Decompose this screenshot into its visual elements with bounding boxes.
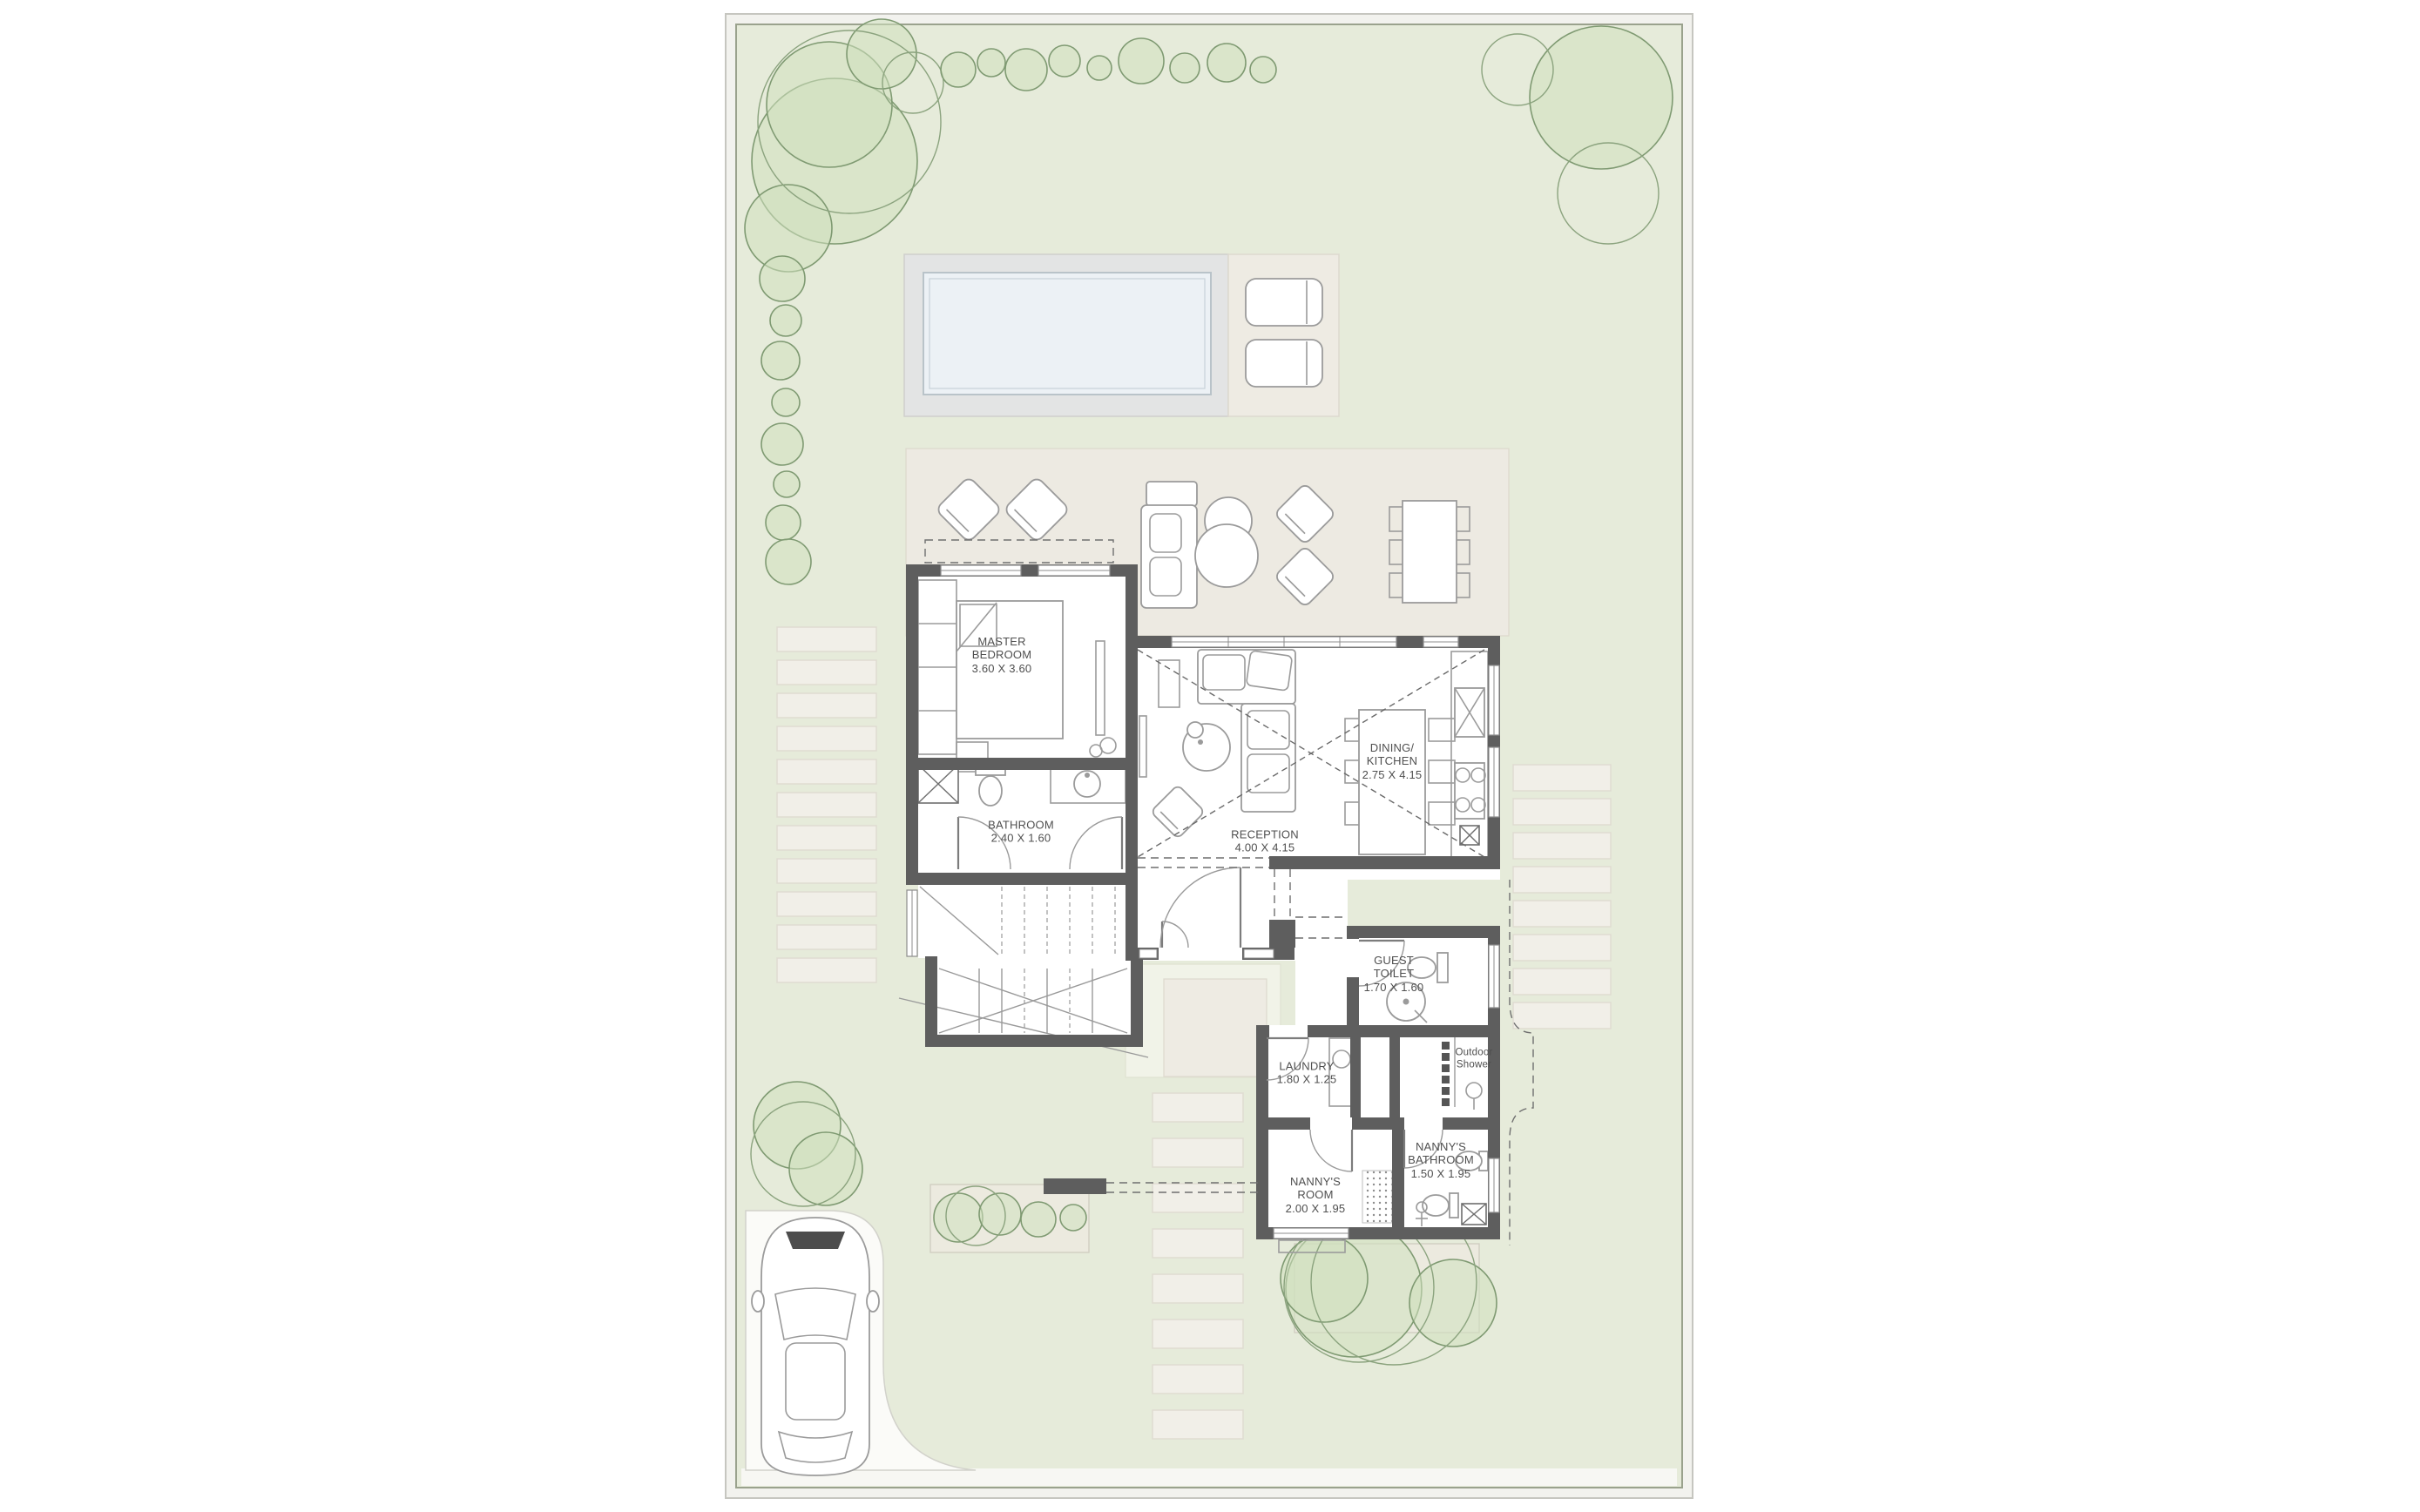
room-label-master-bedroom: MASTER BEDROOM 3.60 X 3.60 [962, 635, 1042, 675]
room-label-laundry: LAUNDRY 1.80 X 1.25 [1254, 1060, 1359, 1087]
room-label-reception: RECEPTION 4.00 X 4.15 [1200, 828, 1330, 855]
room-label-dining-kitchen: DINING/ KITCHEN 2.75 X 4.15 [1352, 741, 1432, 781]
window-icon [1423, 637, 1458, 647]
rug-icon [1362, 1171, 1392, 1223]
sofa-icon [1141, 482, 1197, 608]
window-icon [1172, 637, 1396, 647]
floor-plan-drawing [0, 0, 2420, 1512]
toilet-icon [1423, 1193, 1458, 1218]
garden-wall-icon [1044, 1178, 1106, 1194]
shaft-icon [1462, 1204, 1486, 1225]
window-icon [1489, 945, 1499, 1008]
window-icon [941, 565, 1021, 576]
site-plan-canvas: MASTER BEDROOM 3.60 X 3.60 BATHROOM 2.40… [0, 0, 2420, 1512]
window-icon [907, 890, 917, 956]
window-icon [1489, 665, 1499, 735]
car-icon [752, 1218, 879, 1475]
window-icon [1489, 747, 1499, 817]
shaft-icon [918, 765, 958, 803]
room-label-guest-toilet: GUEST TOILET 1.70 X 1.60 [1355, 954, 1432, 994]
shaft-icon [1460, 826, 1479, 845]
pool-area [904, 254, 1339, 416]
window-icon [1489, 1158, 1499, 1212]
window-icon [1038, 565, 1110, 576]
room-label-nannys-bathroom: NANNY'S BATHROOM 1.50 X 1.95 [1397, 1140, 1484, 1180]
stove-icon [1455, 763, 1485, 819]
room-label-nannys-room: NANNY'S ROOM 2.00 X 1.95 [1278, 1175, 1353, 1215]
room-label-outdoor-shower: Outdoor Shower [1448, 1047, 1500, 1070]
window-icon [1274, 1228, 1349, 1239]
kitchen-sink-icon [1455, 688, 1484, 737]
pool-icon [923, 273, 1211, 395]
room-label-bathroom: BATHROOM 2.40 X 1.60 [969, 819, 1073, 846]
